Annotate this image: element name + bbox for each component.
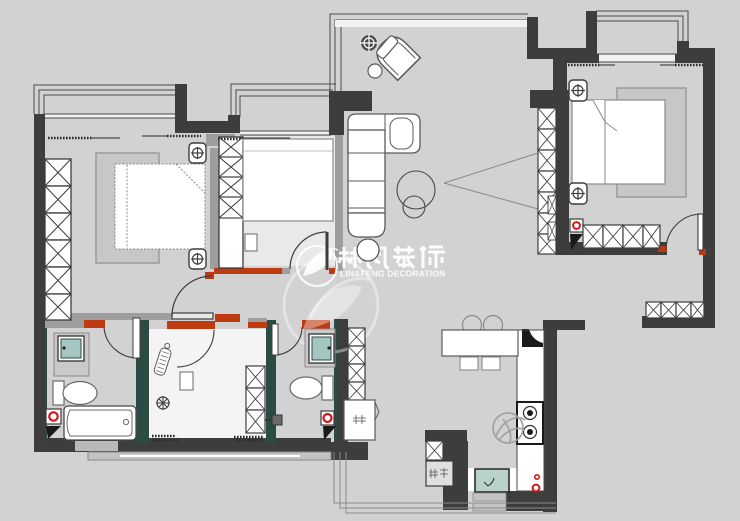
svg-text:LIN&FENG DECORATION: LIN&FENG DECORATION [340, 269, 445, 279]
